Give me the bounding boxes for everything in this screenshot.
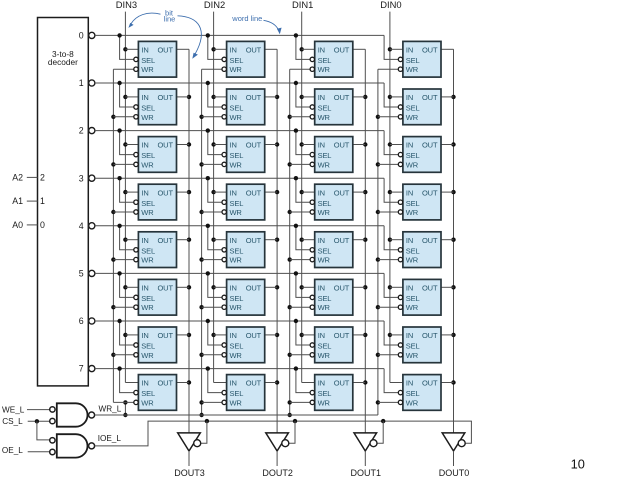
svg-text:OUT: OUT [158,141,174,150]
svg-text:OUT: OUT [334,93,350,102]
svg-text:OUT: OUT [246,93,262,102]
svg-text:OUT: OUT [422,46,438,55]
svg-text:SEL: SEL [406,104,420,113]
svg-text:IN: IN [230,93,237,102]
svg-text:WR: WR [406,113,419,122]
svg-text:IN: IN [230,284,237,293]
svg-text:SEL: SEL [230,389,244,398]
svg-text:1: 1 [40,196,45,206]
svg-text:IN: IN [406,141,413,150]
svg-text:IN: IN [318,188,325,197]
svg-text:IN: IN [230,236,237,245]
svg-text:SEL: SEL [318,246,332,255]
svg-text:OUT: OUT [334,141,350,150]
svg-text:IN: IN [318,379,325,388]
svg-text:WR: WR [406,398,419,407]
svg-text:A2: A2 [12,173,23,183]
svg-text:IN: IN [318,46,325,55]
svg-text:IN: IN [406,46,413,55]
svg-text:WR: WR [230,256,243,265]
svg-text:OUT: OUT [158,188,174,197]
svg-text:IN: IN [318,236,325,245]
svg-text:OUT: OUT [422,331,438,340]
svg-text:SEL: SEL [230,56,244,65]
svg-text:WR: WR [406,351,419,360]
svg-text:OUT: OUT [158,236,174,245]
svg-text:SEL: SEL [406,56,420,65]
svg-text:OUT: OUT [246,141,262,150]
svg-text:OUT: OUT [246,379,262,388]
svg-text:OUT: OUT [158,93,174,102]
svg-text:IN: IN [406,93,413,102]
svg-text:OUT: OUT [422,379,438,388]
svg-text:WR: WR [141,160,154,169]
svg-text:IN: IN [230,331,237,340]
svg-text:WR: WR [141,351,154,360]
svg-text:1: 1 [79,78,84,88]
svg-text:OUT: OUT [422,236,438,245]
svg-text:SEL: SEL [406,389,420,398]
svg-text:SEL: SEL [141,294,155,303]
svg-text:WR: WR [318,65,331,74]
svg-text:word line: word line [231,14,262,23]
svg-text:OUT: OUT [334,46,350,55]
svg-text:3: 3 [79,173,84,183]
svg-text:WR: WR [230,398,243,407]
svg-text:A1: A1 [12,196,23,206]
svg-text:DOUT1: DOUT1 [351,468,382,478]
svg-text:SEL: SEL [230,104,244,113]
svg-text:OUT: OUT [158,284,174,293]
svg-text:WR: WR [230,160,243,169]
svg-text:SEL: SEL [141,246,155,255]
svg-text:OUT: OUT [422,188,438,197]
svg-text:IN: IN [318,331,325,340]
svg-text:SEL: SEL [141,342,155,351]
svg-text:IN: IN [141,284,148,293]
svg-text:OUT: OUT [334,331,350,340]
svg-text:WR: WR [141,256,154,265]
svg-text:WR: WR [406,303,419,312]
svg-text:IN: IN [141,331,148,340]
svg-text:IN: IN [230,188,237,197]
svg-text:line: line [164,14,176,23]
svg-text:10: 10 [571,457,585,472]
svg-text:0: 0 [40,220,45,230]
svg-text:WR: WR [406,256,419,265]
svg-text:5: 5 [79,269,84,279]
svg-text:WR: WR [141,303,154,312]
svg-text:OUT: OUT [158,379,174,388]
svg-text:DIN0: DIN0 [380,0,401,10]
svg-text:OUT: OUT [422,284,438,293]
svg-text:SEL: SEL [141,104,155,113]
svg-text:OUT: OUT [334,379,350,388]
svg-text:IN: IN [141,46,148,55]
svg-text:WR: WR [318,208,331,217]
svg-text:DOUT0: DOUT0 [439,468,470,478]
svg-text:DIN2: DIN2 [204,0,225,10]
svg-text:DIN3: DIN3 [116,0,137,10]
svg-text:DOUT2: DOUT2 [262,468,293,478]
svg-text:OUT: OUT [158,331,174,340]
svg-text:OUT: OUT [334,236,350,245]
svg-text:IN: IN [406,284,413,293]
svg-text:WE_L: WE_L [2,405,25,414]
svg-text:IN: IN [406,188,413,197]
svg-text:7: 7 [79,364,84,374]
svg-text:OUT: OUT [246,284,262,293]
svg-text:WR: WR [141,398,154,407]
svg-text:IN: IN [141,93,148,102]
svg-text:IN: IN [141,141,148,150]
svg-text:SEL: SEL [230,294,244,303]
svg-text:WR: WR [230,303,243,312]
svg-text:SEL: SEL [406,246,420,255]
svg-text:SEL: SEL [141,56,155,65]
svg-text:6: 6 [79,316,84,326]
svg-text:A0: A0 [12,220,23,230]
svg-text:OUT: OUT [246,236,262,245]
svg-text:IN: IN [318,284,325,293]
svg-text:IN: IN [230,141,237,150]
svg-text:SEL: SEL [141,199,155,208]
svg-text:OUT: OUT [334,188,350,197]
svg-text:WR: WR [406,208,419,217]
svg-text:2: 2 [40,173,45,183]
svg-text:SEL: SEL [141,389,155,398]
svg-text:WR_L: WR_L [99,404,122,413]
svg-text:decoder: decoder [48,57,78,67]
svg-text:CS_L: CS_L [2,417,23,426]
svg-text:IN: IN [230,379,237,388]
svg-text:WR: WR [318,351,331,360]
svg-text:OUT: OUT [246,331,262,340]
svg-text:WR: WR [230,113,243,122]
svg-text:SEL: SEL [406,199,420,208]
svg-text:SEL: SEL [406,342,420,351]
svg-text:2: 2 [79,126,84,136]
svg-text:OUT: OUT [422,141,438,150]
svg-text:WR: WR [141,65,154,74]
svg-text:WR: WR [318,303,331,312]
svg-text:SEL: SEL [318,56,332,65]
svg-text:WR: WR [318,398,331,407]
svg-text:SEL: SEL [230,151,244,160]
svg-text:IN: IN [406,379,413,388]
svg-text:SEL: SEL [406,294,420,303]
svg-text:IN: IN [406,236,413,245]
svg-text:OUT: OUT [334,284,350,293]
svg-text:SEL: SEL [318,389,332,398]
svg-text:IN: IN [141,379,148,388]
svg-text:IN: IN [406,331,413,340]
svg-text:SEL: SEL [230,199,244,208]
svg-text:WR: WR [230,208,243,217]
svg-text:IN: IN [318,141,325,150]
svg-text:WR: WR [318,160,331,169]
svg-text:WR: WR [141,113,154,122]
svg-text:DIN1: DIN1 [292,0,313,10]
svg-text:WR: WR [230,65,243,74]
svg-text:4: 4 [79,221,84,231]
svg-text:SEL: SEL [318,342,332,351]
svg-text:SEL: SEL [318,199,332,208]
svg-text:WR: WR [141,208,154,217]
svg-text:SEL: SEL [318,294,332,303]
svg-text:SEL: SEL [230,342,244,351]
svg-text:OUT: OUT [422,93,438,102]
svg-text:SEL: SEL [318,104,332,113]
svg-text:IN: IN [141,188,148,197]
svg-text:SEL: SEL [406,151,420,160]
svg-text:OUT: OUT [158,46,174,55]
svg-text:WR: WR [318,256,331,265]
svg-text:IN: IN [318,93,325,102]
svg-text:IOE_L: IOE_L [98,434,122,443]
svg-text:WR: WR [406,65,419,74]
svg-text:IN: IN [141,236,148,245]
svg-text:OUT: OUT [246,46,262,55]
svg-text:0: 0 [79,31,84,41]
svg-text:WR: WR [230,351,243,360]
svg-text:SEL: SEL [318,151,332,160]
svg-text:OUT: OUT [246,188,262,197]
svg-text:WR: WR [318,113,331,122]
svg-text:SEL: SEL [141,151,155,160]
svg-text:OE_L: OE_L [2,446,23,455]
svg-text:WR: WR [406,160,419,169]
svg-text:IN: IN [230,46,237,55]
svg-text:SEL: SEL [230,246,244,255]
svg-text:DOUT3: DOUT3 [174,468,205,478]
